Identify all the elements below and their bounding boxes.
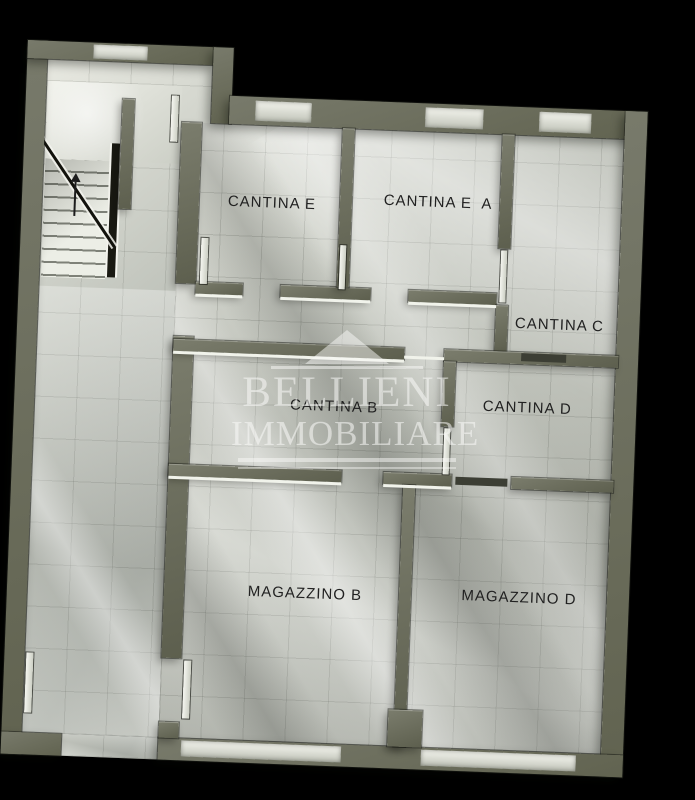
window-recess bbox=[181, 740, 341, 762]
corridor-exit-floor bbox=[61, 734, 159, 760]
watermark: BELLIENI IMMOBILIARE bbox=[231, 330, 463, 469]
window-recess bbox=[420, 750, 575, 772]
light-beam bbox=[21, 286, 175, 738]
watermark-rule bbox=[238, 458, 456, 462]
wall-corridor-lower bbox=[158, 722, 179, 739]
stair-up-arrow-head bbox=[71, 173, 81, 182]
watermark-rule bbox=[238, 467, 456, 469]
window-recess bbox=[539, 112, 592, 134]
floor-plan-render: CANTINA E CANTINA E A CANTINA C CANTINA … bbox=[0, 0, 695, 800]
wall-pillar bbox=[387, 709, 422, 747]
watermark-brand: BELLIENI bbox=[231, 371, 463, 415]
outer-wall-bottom-left bbox=[1, 731, 62, 755]
watermark-subtitle: IMMOBILIARE bbox=[231, 416, 463, 451]
window-recess bbox=[255, 101, 312, 123]
corridor-floor bbox=[21, 286, 175, 738]
roof-triangle-icon bbox=[305, 330, 389, 364]
window-recess bbox=[425, 107, 484, 129]
door-threshold bbox=[521, 353, 566, 363]
window-recess bbox=[93, 45, 147, 61]
